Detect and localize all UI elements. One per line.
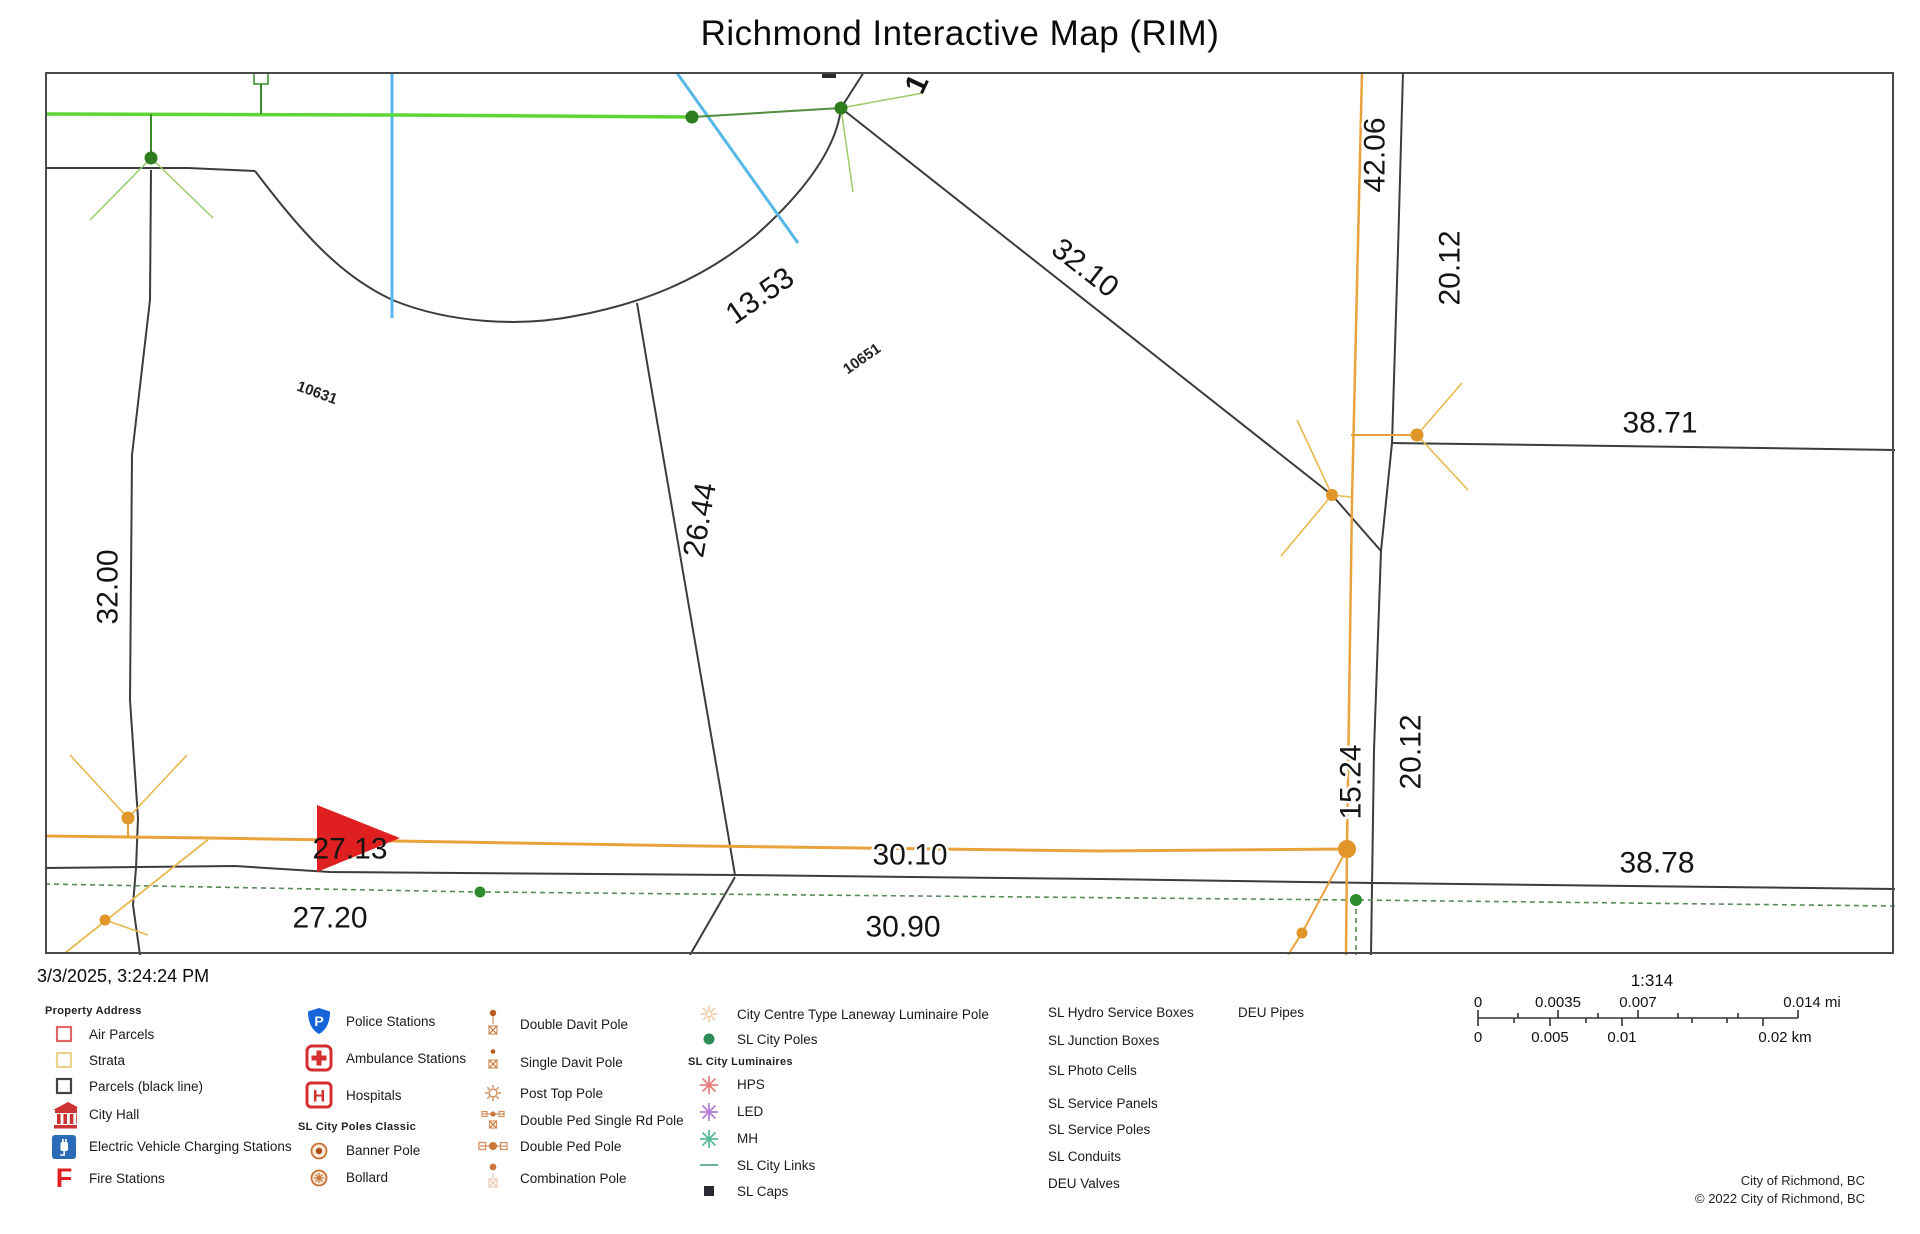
dimension-label: 15.24 xyxy=(1335,744,1368,819)
scale-tick-label: 0.007 xyxy=(1619,994,1657,1011)
map-svg: 42.06 20.12 32.10 13.53 38.71 32.00 26.4… xyxy=(45,72,1895,955)
legend-label: SL Service Poles xyxy=(1048,1122,1194,1137)
dimension-label: 13.53 xyxy=(720,261,800,331)
parcel-id-labels: 10631 10651 xyxy=(294,340,883,408)
legend-label: City Centre Type Laneway Luminaire Pole xyxy=(737,1007,989,1022)
legend-item-hps: HPS xyxy=(688,1071,989,1098)
fire-stations-icon: F xyxy=(51,1165,77,1192)
legend-item-banner-pole: Banner Pole xyxy=(298,1137,466,1164)
legend-item-police: P Police Stations xyxy=(298,1003,466,1039)
dimension-label: 26.44 xyxy=(677,480,723,560)
legend-item-combination: Combination Pole xyxy=(478,1159,684,1197)
map-credits: City of Richmond, BC © 2022 City of Rich… xyxy=(1695,1172,1865,1208)
legend-label: SL Conduits xyxy=(1048,1149,1194,1164)
legend-label: SL Hydro Service Boxes xyxy=(1048,1005,1194,1020)
dimension-label: 38.78 xyxy=(1619,847,1694,880)
legend-label: Parcels (black line) xyxy=(89,1079,203,1094)
legend-label: Strata xyxy=(89,1053,125,1068)
legend-label: Banner Pole xyxy=(346,1143,420,1158)
scale-ticks xyxy=(1478,1010,1798,1026)
legend-label: SL Junction Boxes xyxy=(1048,1033,1194,1048)
legend-item-mh: MH xyxy=(688,1125,989,1152)
dimension-label: 30.90 xyxy=(865,911,940,944)
scale-tick-label: 0.0035 xyxy=(1535,994,1581,1011)
scale-tick-label: 0.005 xyxy=(1531,1029,1569,1046)
dimension-label: 32.10 xyxy=(1045,232,1124,304)
legend-col-poles: Double Davit Pole Single Davit Pole Post… xyxy=(478,1003,684,1197)
legend-subheader: SL City Poles Classic xyxy=(298,1121,466,1137)
double-ped-single-rd-pole-icon xyxy=(478,1108,508,1132)
legend-header: Property Address xyxy=(45,1005,292,1017)
dimension-label: 27.20 xyxy=(292,902,367,935)
map-canvas: 42.06 20.12 32.10 13.53 38.71 32.00 26.4… xyxy=(45,72,1895,955)
legend-item-fire-stations: F Fire Stations xyxy=(37,1163,292,1193)
sl-city-poles-icon xyxy=(696,1032,722,1046)
legend-item-post-top: Post Top Pole xyxy=(478,1079,684,1107)
legend-label: Single Davit Pole xyxy=(520,1055,623,1070)
parcels-icon xyxy=(51,1077,77,1095)
legend-label: Combination Pole xyxy=(520,1171,627,1186)
legend-item-double-ped: Double Ped Pole xyxy=(478,1133,684,1159)
legend-label: DEU Pipes xyxy=(1238,1005,1304,1020)
sl-city-pole-dots xyxy=(145,102,848,165)
legend-label: HPS xyxy=(737,1077,765,1092)
legend-label: SL City Poles xyxy=(737,1032,818,1047)
laneway-luminaire-icon xyxy=(696,1004,722,1024)
legend-label: DEU Valves xyxy=(1048,1176,1194,1191)
ev-charging-icon xyxy=(51,1135,77,1159)
legend-label: Electric Vehicle Charging Stations xyxy=(89,1139,292,1154)
legend-item-sl-caps: SL Caps xyxy=(688,1178,989,1204)
legend-label: Hospitals xyxy=(346,1088,402,1103)
legend-item-strata: Strata xyxy=(37,1047,292,1073)
city-hall-icon xyxy=(51,1100,77,1130)
legend-item-parcels: Parcels (black line) xyxy=(37,1073,292,1099)
legend-label: LED xyxy=(737,1104,763,1119)
hps-icon xyxy=(696,1075,722,1095)
legend-item-city-centre-laneway: City Centre Type Laneway Luminaire Pole xyxy=(688,1003,989,1025)
mh-icon xyxy=(696,1129,722,1149)
legend-label: SL Photo Cells xyxy=(1048,1063,1194,1078)
led-icon xyxy=(696,1102,722,1122)
scale-tick-label: 0.02 km xyxy=(1758,1029,1811,1046)
sl-caps-icon xyxy=(696,1185,722,1197)
legend-label: Police Stations xyxy=(346,1014,435,1029)
legend-label: Post Top Pole xyxy=(520,1086,603,1101)
legend-label: Double Ped Pole xyxy=(520,1139,621,1154)
green-pole-dot xyxy=(475,887,486,898)
legend-item-double-davit: Double Davit Pole xyxy=(478,1003,684,1045)
legend-label: Ambulance Stations xyxy=(346,1051,466,1066)
legend-item-sl-city-links: SL City Links xyxy=(688,1152,989,1178)
legend-item-hospitals: H Hospitals xyxy=(298,1077,466,1113)
single-davit-pole-icon xyxy=(478,1047,508,1077)
dimension-label: 27.13 xyxy=(312,833,387,866)
legend-item-sl-city-poles: SL City Poles xyxy=(688,1025,989,1053)
legend-col-sl-services: SL Hydro Service Boxes SL Junction Boxes… xyxy=(1048,1003,1194,1191)
copyright-line: © 2022 City of Richmond, BC xyxy=(1695,1190,1865,1208)
legend-item-double-ped-single-rd: Double Ped Single Rd Pole xyxy=(478,1107,684,1133)
scale-km-labels: 0 0.005 0.01 0.02 km xyxy=(1474,1029,1812,1046)
double-ped-pole-icon xyxy=(478,1137,508,1155)
legend-label: Air Parcels xyxy=(89,1027,154,1042)
legend-label: Double Ped Single Rd Pole xyxy=(520,1113,684,1128)
scale-tick-label: 0 xyxy=(1474,1029,1482,1046)
legend-item-air-parcels: Air Parcels xyxy=(37,1021,292,1047)
legend-item-city-hall: City Hall xyxy=(37,1099,292,1130)
legend-label: SL Caps xyxy=(737,1184,788,1199)
legend-item-ev-charging: Electric Vehicle Charging Stations xyxy=(37,1130,292,1163)
credit-line: City of Richmond, BC xyxy=(1695,1172,1865,1190)
scale-tick-label: 0 xyxy=(1474,994,1482,1011)
ambulance-stations-icon xyxy=(302,1044,336,1072)
legend-item-single-davit: Single Davit Pole xyxy=(478,1045,684,1079)
legend-label: City Hall xyxy=(89,1107,139,1122)
dimension-label: 20.12 xyxy=(1434,230,1467,305)
timestamp: 3/3/2025, 3:24:24 PM xyxy=(37,966,209,987)
svg-text:P: P xyxy=(314,1013,323,1029)
sl-city-links-icon xyxy=(696,1162,722,1168)
dimension-label: 20.12 xyxy=(1395,714,1428,789)
combination-pole-icon xyxy=(478,1161,508,1195)
dimension-label: 32.00 xyxy=(92,549,125,624)
bollard-icon xyxy=(302,1169,336,1187)
legend-item-led: LED xyxy=(688,1098,989,1125)
page-title: Richmond Interactive Map (RIM) xyxy=(0,14,1920,54)
orange-pole-dots xyxy=(100,429,1424,939)
legend-label: SL Service Panels xyxy=(1048,1096,1194,1111)
scale-tick-label: 0.014 mi xyxy=(1783,994,1841,1011)
dimension-label: 42.06 xyxy=(1359,117,1392,192)
legend-label: SL City Links xyxy=(737,1158,815,1173)
green-utility-lines xyxy=(45,72,923,220)
scale-mi-labels: 0 0.0035 0.007 0.014 mi xyxy=(1474,994,1841,1011)
scale-ratio: 1:314 xyxy=(1631,971,1674,990)
scale-bar: 1:314 0 0.0035 0.007 0.014 mi 0 0.005 0.… xyxy=(1455,970,1915,1063)
hospitals-icon: H xyxy=(302,1081,336,1109)
double-davit-pole-icon xyxy=(478,1007,508,1041)
legend-item-bollard: Bollard xyxy=(298,1164,466,1191)
parcel-id-label: 10651 xyxy=(840,340,884,378)
legend-label: Fire Stations xyxy=(89,1171,165,1186)
legend-col-luminaires: City Centre Type Laneway Luminaire Pole … xyxy=(688,1003,989,1204)
legend-label: Bollard xyxy=(346,1170,388,1185)
legend-col-stations: P Police Stations Ambulance Stations H H… xyxy=(298,1003,466,1191)
police-stations-icon: P xyxy=(302,1007,336,1035)
scale-tick-label: 0.01 xyxy=(1607,1029,1636,1046)
air-parcels-icon xyxy=(51,1025,77,1043)
svg-text:H: H xyxy=(313,1087,325,1106)
orange-utility-lines xyxy=(45,72,1468,955)
legend-col-property: Property Address Air Parcels Strata Parc… xyxy=(37,1003,292,1193)
dimension-label: 30.10 xyxy=(872,839,947,872)
water-lines xyxy=(392,72,798,318)
strata-icon xyxy=(51,1051,77,1069)
parcel-id-label: 10631 xyxy=(294,378,339,408)
green-pole-dot xyxy=(1350,894,1362,906)
dimension-label: 38.71 xyxy=(1622,407,1697,440)
legend-item-ambulance: Ambulance Stations xyxy=(298,1039,466,1077)
legend-col-deu: DEU Pipes xyxy=(1238,1003,1304,1020)
legend-subheader: SL City Luminaires xyxy=(688,1053,989,1071)
legend-label: Double Davit Pole xyxy=(520,1017,628,1032)
legend-label: MH xyxy=(737,1131,758,1146)
banner-pole-icon xyxy=(302,1142,336,1160)
post-top-pole-icon xyxy=(478,1083,508,1103)
